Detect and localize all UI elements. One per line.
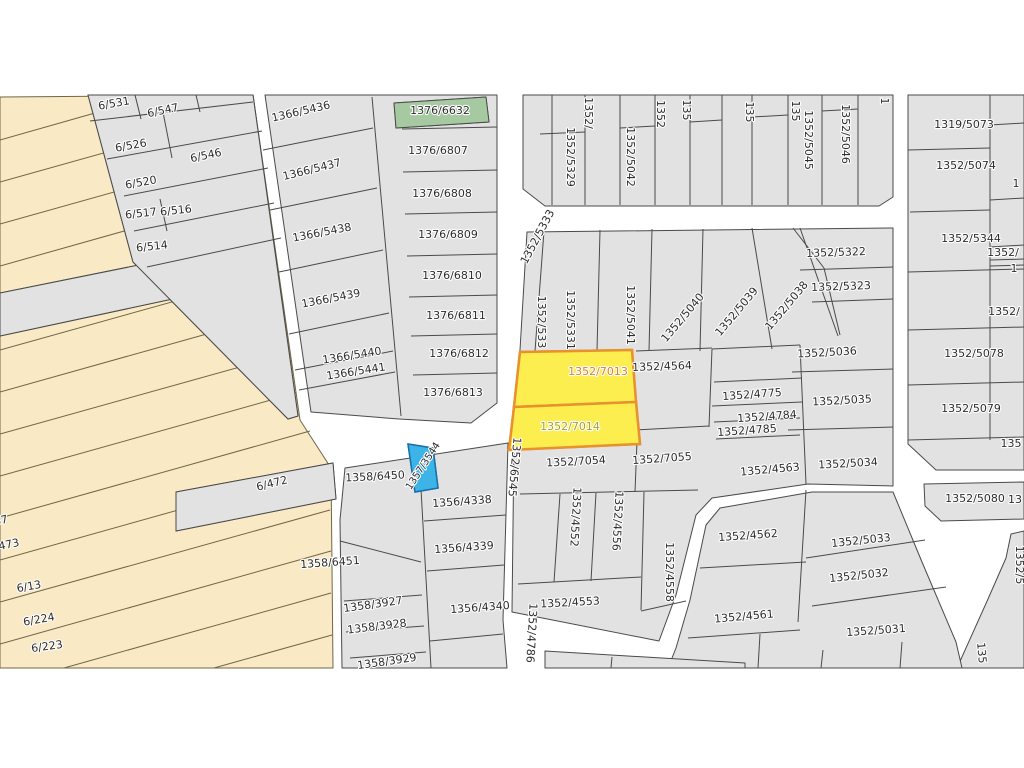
parcel-label: 135	[743, 102, 756, 123]
parcel-label: 1352/4564	[632, 359, 692, 374]
parcel-label: 1352/4558	[663, 542, 676, 602]
parcel-label: 1352/5045	[802, 110, 815, 170]
cadastral-map: 6/5316/5476/5266/5466/5206/5176/5166/514…	[0, 0, 1024, 768]
parcel-label: 1376/6812	[429, 347, 489, 360]
parcel-label: 1352/5329	[564, 127, 577, 187]
parcel-label: 13	[1008, 493, 1022, 506]
parcel-1352-7013[interactable]	[514, 350, 636, 407]
parcel-label: 1352/5344	[941, 232, 1001, 245]
parcel-label: 1352/5046	[839, 104, 852, 164]
parcel-label: 1376/6632	[410, 104, 470, 117]
parcel-label: 1352/7013	[568, 365, 628, 378]
parcel-label: 1352	[654, 100, 667, 128]
parcel-label: 1376/6813	[423, 386, 483, 399]
parcel-label: 1352/5322	[806, 245, 866, 260]
parcel-label: 1352/	[582, 97, 595, 129]
parcel-label: 1376/6808	[412, 187, 472, 200]
parcel-label: 1352/5	[1013, 546, 1024, 585]
parcel-label: 1352/5042	[624, 127, 637, 187]
parcel-label: 1352/533	[535, 296, 548, 349]
parcel-label: 1319/5073	[934, 118, 994, 131]
parcel-label: 1352/5080	[945, 492, 1005, 505]
parcel-label: 135	[974, 642, 989, 664]
parcel-label: 1376/6807	[408, 144, 468, 157]
parcel-label: 1352/5078	[944, 347, 1004, 360]
parcel-label: 135	[1001, 437, 1022, 450]
parcel-label: 1352/5074	[936, 159, 996, 172]
parcel-label: 1352/	[988, 305, 1020, 318]
parcel-label: 1376/6809	[418, 228, 478, 241]
parcel-label: 1376/6811	[426, 309, 486, 322]
parcel-label: 135	[680, 100, 693, 121]
parcel-label: 135	[789, 101, 802, 122]
parcel-label: 1352/5323	[811, 279, 871, 294]
map-canvas[interactable]: 6/5316/5476/5266/5466/5206/5176/5166/514…	[0, 0, 1024, 768]
parcel-label: 1	[878, 98, 891, 105]
parcel-label: 1352/	[987, 246, 1019, 259]
parcel-label: 1352/5079	[941, 402, 1001, 415]
parcel-label: 1376/6810	[422, 269, 482, 282]
block-top-1352[interactable]	[523, 95, 893, 206]
parcel-label: 1352/7014	[540, 420, 600, 433]
parcel-label: 1352/5041	[624, 285, 637, 345]
parcel-label: 1352/5331	[564, 290, 577, 350]
parcel-label: 1	[1011, 262, 1018, 275]
parcel-label: 1	[1013, 177, 1020, 190]
